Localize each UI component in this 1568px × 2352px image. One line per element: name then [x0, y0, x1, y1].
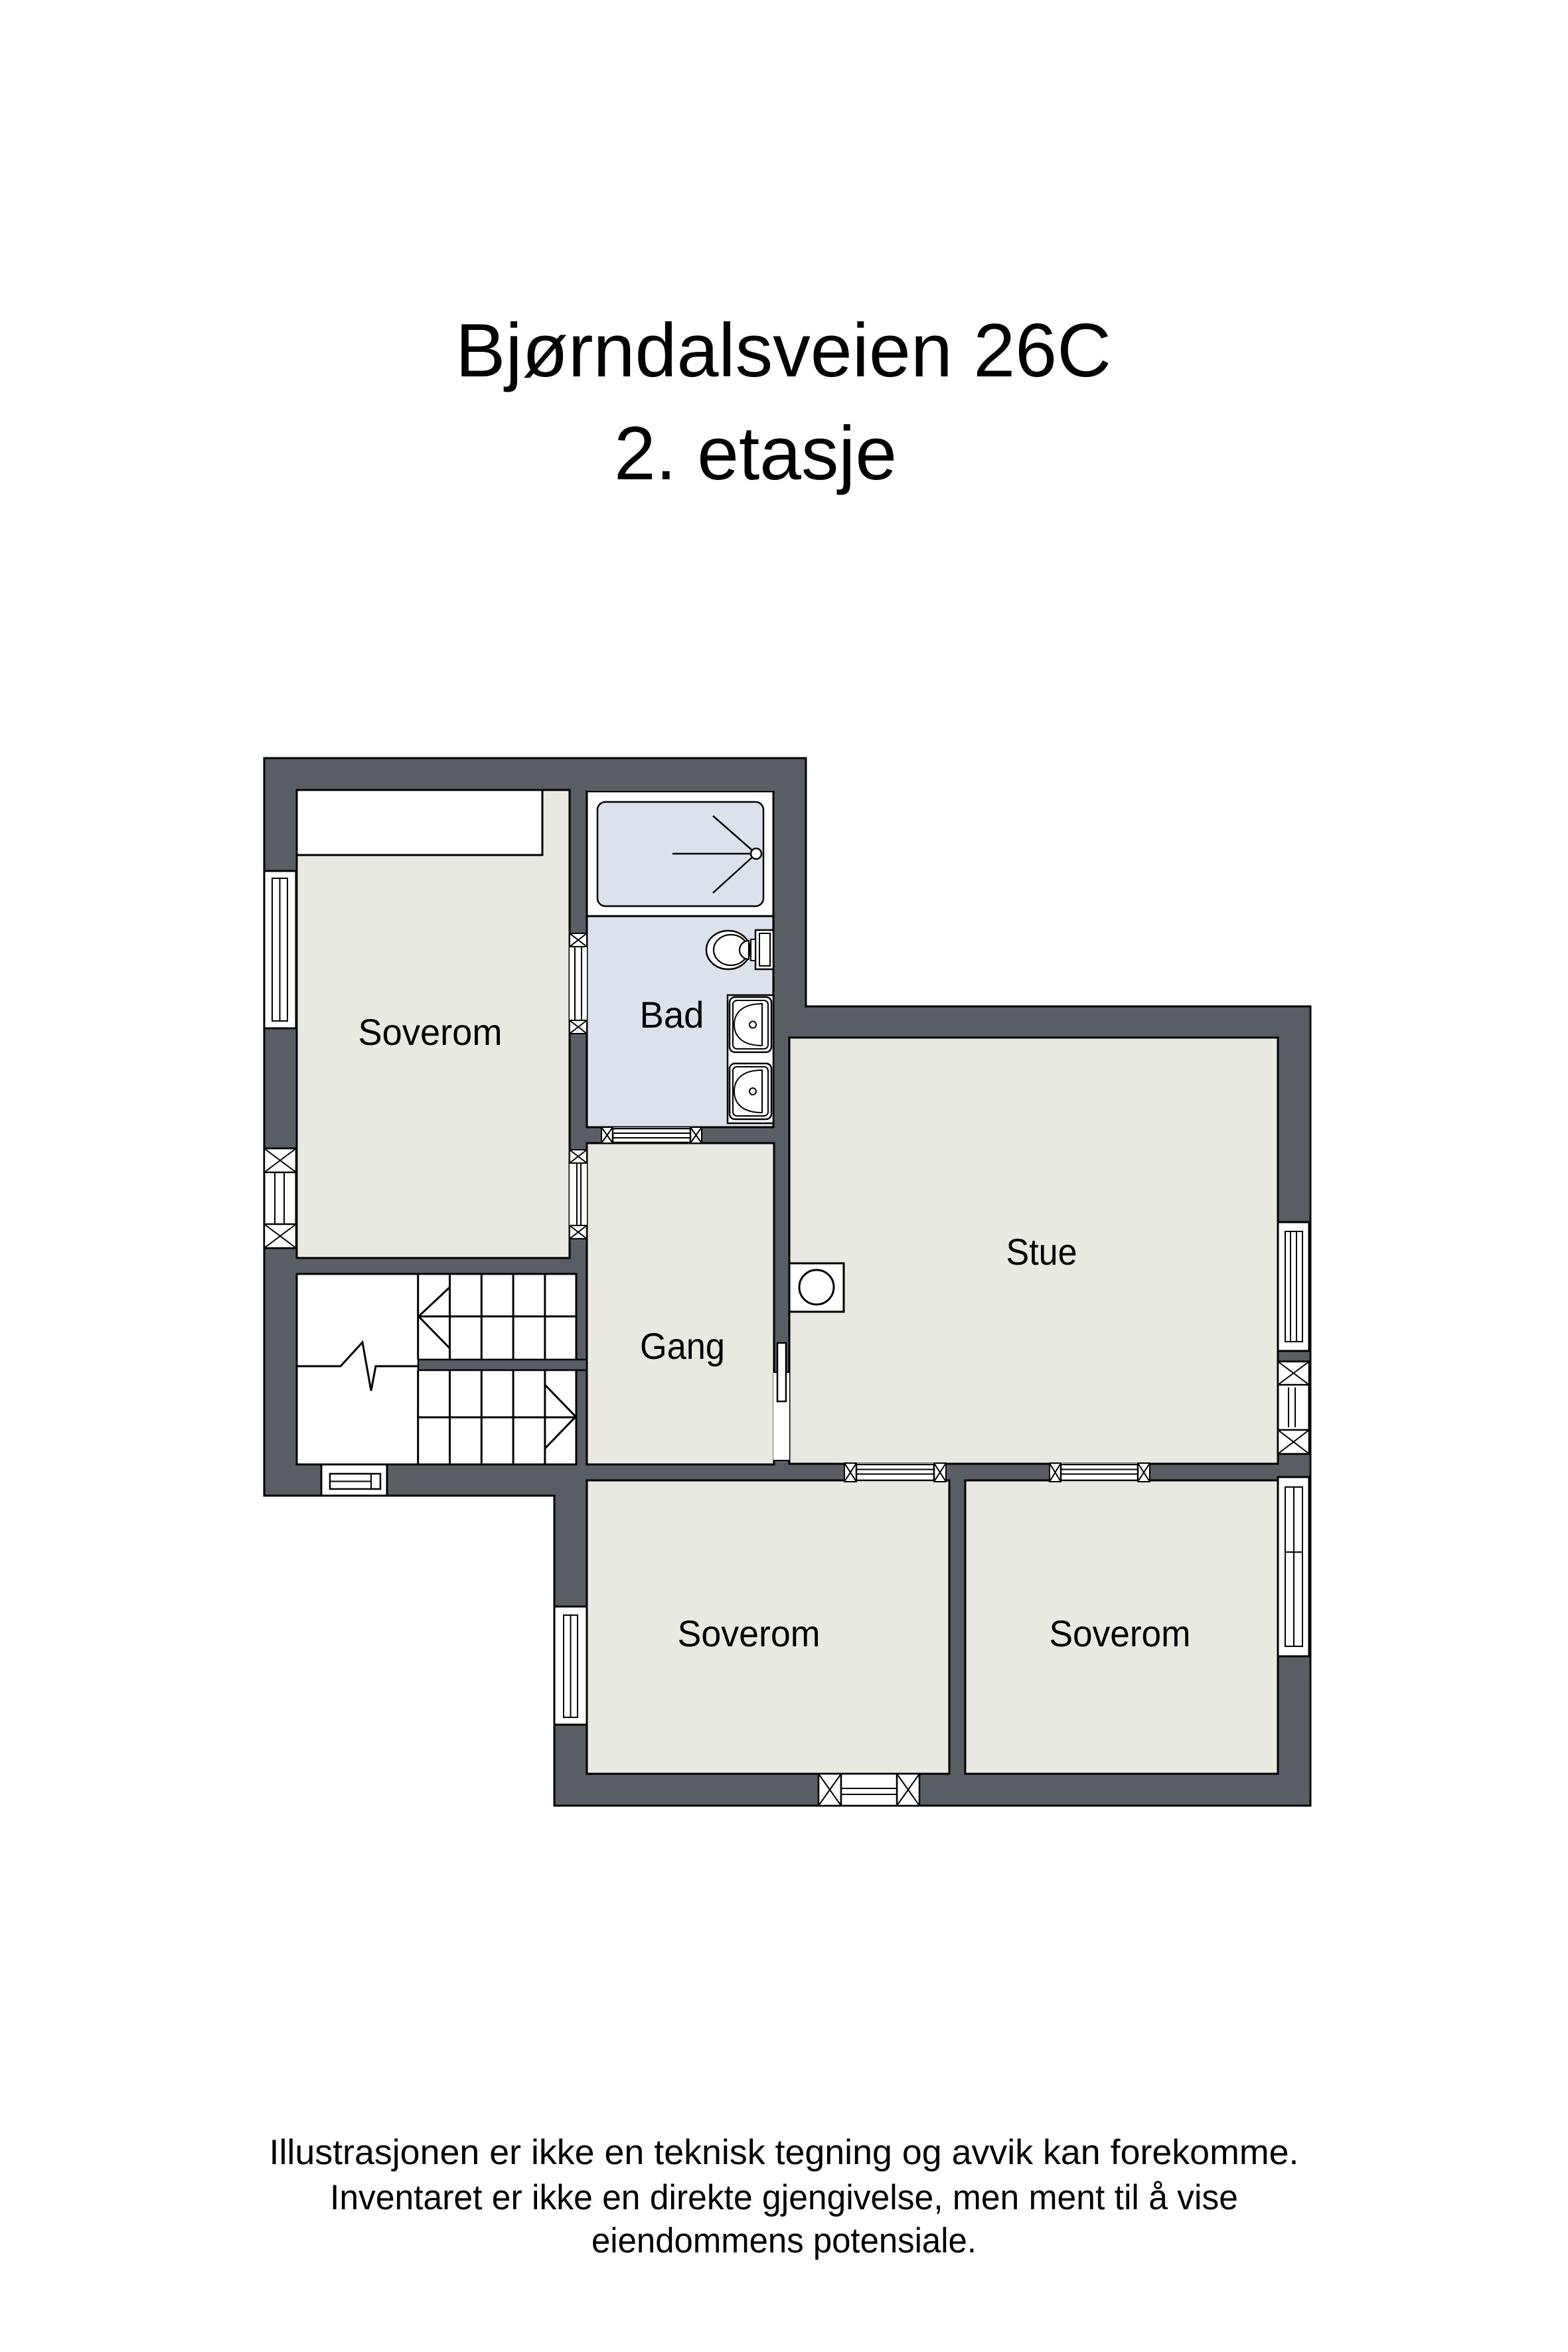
svg-text:Soverom: Soverom	[678, 1612, 821, 1654]
svg-text:Illustrasjonen er ikke en tekn: Illustrasjonen er ikke en teknisk tegnin…	[270, 2133, 1299, 2172]
svg-text:2. etasje: 2. etasje	[614, 412, 897, 496]
svg-text:Stue: Stue	[1006, 1231, 1077, 1273]
svg-text:Soverom: Soverom	[1050, 1612, 1191, 1654]
svg-text:Gang: Gang	[640, 1325, 725, 1367]
svg-text:Bjørndalsveien 26C: Bjørndalsveien 26C	[455, 309, 1111, 393]
svg-text:Inventaret er ikke en direkte: Inventaret er ikke en direkte gjengivels…	[330, 2178, 1238, 2217]
svg-text:Bad: Bad	[640, 994, 704, 1036]
svg-text:Soverom: Soverom	[358, 1011, 503, 1053]
svg-text:eiendommens potensiale.: eiendommens potensiale.	[591, 2221, 977, 2260]
